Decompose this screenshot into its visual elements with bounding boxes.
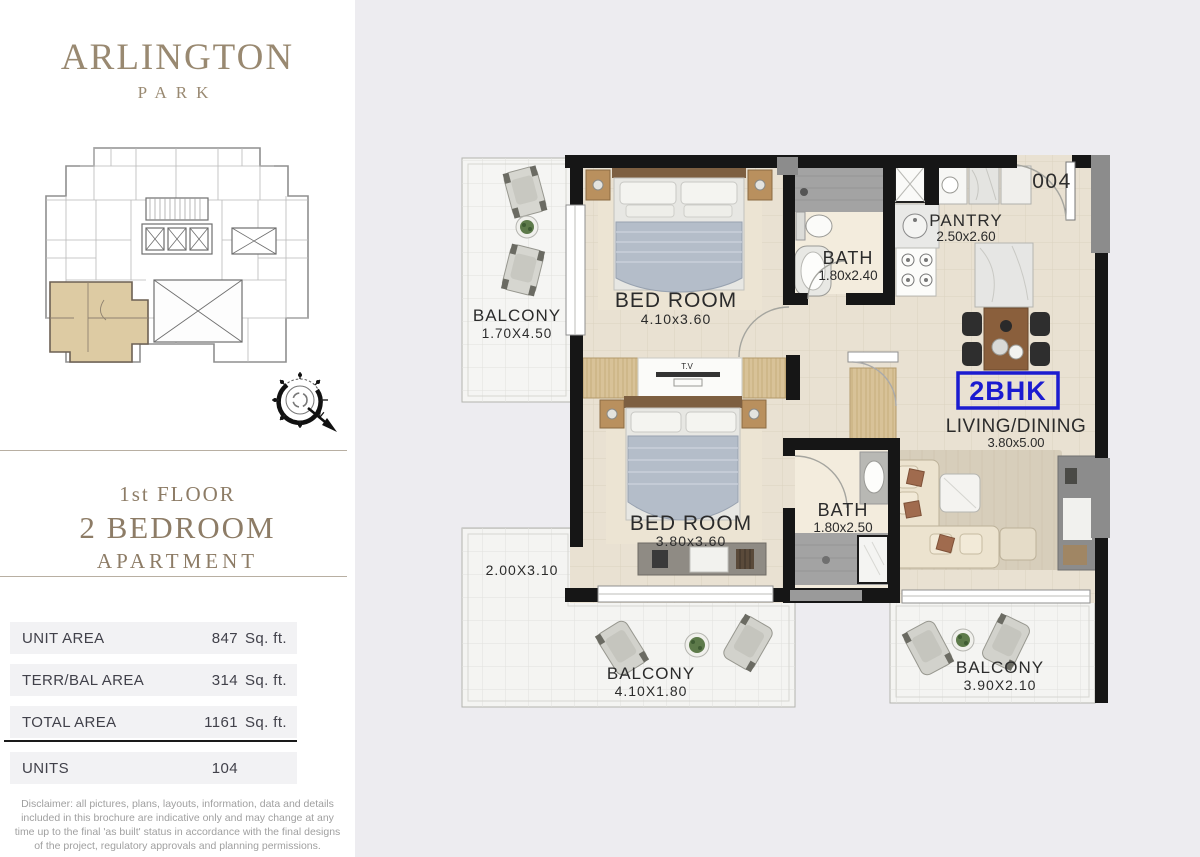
living-dim: 3.80x5.00	[987, 435, 1044, 450]
kitchen-island	[975, 243, 1033, 307]
divider-top	[0, 450, 347, 451]
disclaimer-text: Disclaimer: all pictures, plans, layouts…	[14, 798, 341, 853]
row-value: 104	[188, 760, 238, 777]
bedroom1-label: BED ROOM	[615, 289, 737, 312]
compass-icon: N	[262, 362, 348, 450]
balcony1-label: BALCONY	[473, 306, 561, 325]
living-label: LIVING/DINING	[946, 416, 1087, 437]
table-row: TOTAL AREA 1161 Sq. ft.	[10, 706, 297, 738]
unit-type-badge: 2BHK	[958, 373, 1058, 408]
tv-label: T.V	[681, 362, 693, 371]
table-row: TERR/BAL AREA 314 Sq. ft.	[10, 664, 297, 696]
unit-type-suffix: APARTMENT	[0, 549, 355, 574]
row-unit: Sq. ft.	[245, 630, 297, 647]
balcony1-dim: 1.70X4.50	[482, 326, 553, 341]
floor-number: 1st FLOOR	[0, 482, 355, 507]
bedroom2-label: BED ROOM	[630, 512, 752, 535]
divider-bottom	[0, 576, 347, 577]
terrace-dim: 2.00X3.10	[486, 562, 559, 578]
bath2-label: BATH	[818, 500, 869, 520]
pantry-label: PANTRY	[929, 211, 1002, 230]
table-divider	[4, 740, 297, 742]
table-row: UNITS 104	[10, 752, 297, 784]
floor-plan: BALCONY 1.70X4.50 BED ROOM 4.10x3.60 BAT…	[440, 140, 1130, 715]
unit-number: 004	[1032, 170, 1072, 193]
sidebar: ARLINGTON PARK	[0, 0, 355, 857]
plant	[952, 629, 974, 651]
brand-logo: ARLINGTON PARK	[0, 36, 355, 103]
plant	[685, 633, 709, 657]
row-label: UNITS	[10, 760, 188, 777]
key-plan-diagram	[36, 140, 318, 370]
table-row: UNIT AREA 847 Sq. ft.	[10, 622, 297, 654]
row-unit: Sq. ft.	[245, 672, 297, 689]
balcony-right-label: BALCONY	[956, 658, 1044, 677]
row-value: 1161	[188, 714, 238, 731]
pantry-dim: 2.50x2.60	[936, 229, 995, 244]
bath2-dim: 1.80x2.50	[813, 520, 872, 535]
plant	[516, 216, 538, 238]
row-value: 847	[188, 630, 238, 647]
living-room-furniture	[893, 450, 1062, 570]
unit-type-text: 2BHK	[969, 376, 1047, 406]
row-value: 314	[188, 672, 238, 689]
balcony-bottom-dim: 4.10X1.80	[615, 683, 688, 699]
row-label: TERR/BAL AREA	[10, 672, 188, 689]
bath1-dim: 1.80x2.40	[818, 268, 877, 283]
row-unit: Sq. ft.	[245, 714, 297, 731]
bath1-label: BATH	[823, 248, 874, 268]
unit-type-title: 2 BEDROOM	[0, 510, 355, 546]
brand-name: ARLINGTON	[0, 36, 355, 79]
brand-subname: PARK	[0, 83, 355, 103]
brochure-page: { "brand": {"name": "ARLINGTON", "sub": …	[0, 0, 1200, 857]
bedroom2-dim: 3.80x3.60	[656, 533, 727, 549]
bedroom1-dim: 4.10x3.60	[641, 311, 712, 327]
row-label: TOTAL AREA	[10, 714, 188, 731]
row-label: UNIT AREA	[10, 630, 188, 647]
area-table: UNIT AREA 847 Sq. ft. TERR/BAL AREA 314 …	[10, 622, 297, 794]
floor-title: 1st FLOOR 2 BEDROOM APARTMENT	[0, 482, 355, 574]
tv-console-living	[1058, 456, 1096, 570]
balcony-right-dim: 3.90X2.10	[964, 677, 1037, 693]
balcony-bottom-label: BALCONY	[607, 664, 695, 683]
floorplan-panel: BALCONY 1.70X4.50 BED ROOM 4.10x3.60 BAT…	[355, 0, 1200, 857]
